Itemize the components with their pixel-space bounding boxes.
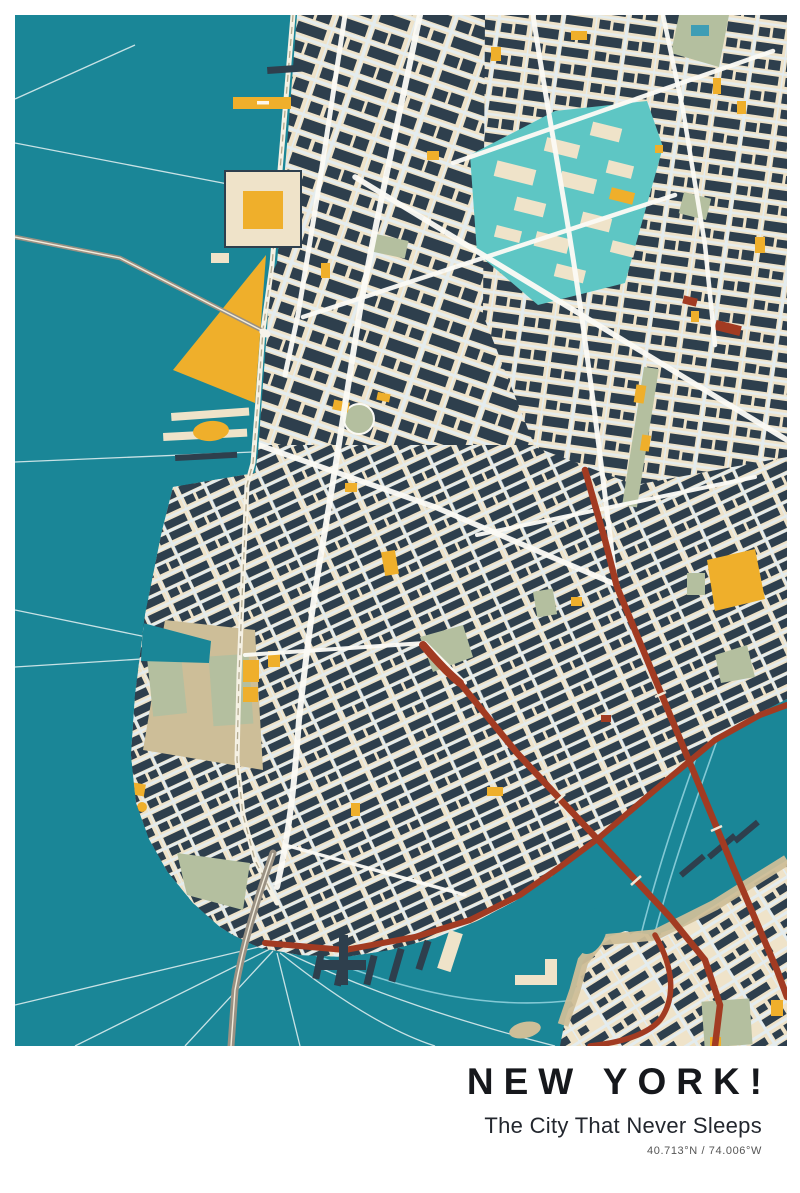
poster-title: NEW YORK! xyxy=(467,1063,772,1100)
city-map xyxy=(15,15,787,1046)
map-poster: NEW YORK! The City That Never Sleeps 40.… xyxy=(0,0,800,1193)
poster-coordinates: 40.713°N / 74.006°W xyxy=(467,1146,762,1157)
poster-footer: NEW YORK! The City That Never Sleeps 40.… xyxy=(467,1063,762,1157)
map-frame xyxy=(15,15,787,1046)
poster-subtitle: The City That Never Sleeps xyxy=(467,1115,762,1137)
